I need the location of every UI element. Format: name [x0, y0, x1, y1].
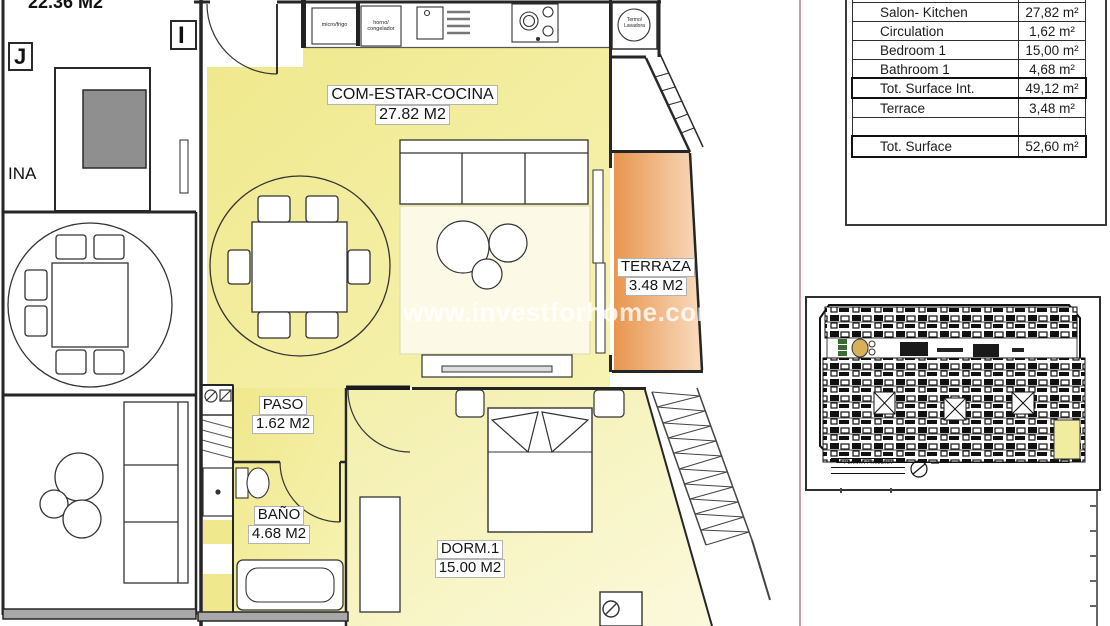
room-label-salon: COM-ESTAR-COCINA 27.82 M2 [330, 85, 495, 125]
appliance-label-micro: micro/frigo [313, 22, 356, 28]
neighbor-dining-table [8, 223, 172, 387]
room-label-paso: PASO 1.62 M2 [248, 396, 318, 434]
keyplan-caption: PLANTA PRIMERA [831, 458, 905, 468]
room-label-dorm: DORM.1 15.00 M2 [430, 540, 510, 578]
stair-elevator-core [9, 21, 196, 211]
partial-room-label: INA [8, 164, 36, 184]
bed [488, 408, 592, 532]
table-row: Salon- Kitchen 27,82 m² [852, 2, 1086, 21]
ruler-tick [1090, 580, 1097, 582]
table-row: Bedroom 1 15,00 m² [852, 40, 1086, 59]
keyplan-caption-rule [831, 470, 905, 474]
ruler-tick [1090, 505, 1097, 507]
appliance-label-horno: horno/ congelador [362, 20, 400, 33]
neighbor-sofa [40, 402, 188, 583]
utility-shaft [201, 385, 233, 516]
kitchen-sink [417, 7, 470, 39]
panel-separator-line [799, 0, 801, 626]
room-label-bano: BAÑO 4.68 M2 [243, 506, 315, 544]
table-row-empty [852, 117, 1086, 136]
ruler-tick [1090, 530, 1097, 532]
table-row: Terrace 3,48 m² [852, 98, 1086, 117]
surface-table: Salon- Kitchen 27,82 m² Circulation 1,62… [852, 0, 1086, 157]
keyplan-box: PLANTA PRIMERA [805, 296, 1101, 491]
appliance-label-termo: Termo/ Lavadora [616, 18, 653, 30]
keyplan-highlight-unit [1054, 420, 1080, 459]
frame-tick [890, 488, 892, 493]
facade-diagonal-top [646, 54, 703, 152]
table-row-partial [852, 0, 1086, 2]
table-row-total-interior: Tot. Surface Int. 49,12 m² [852, 78, 1086, 98]
wardrobe [360, 497, 400, 612]
sofa [400, 140, 588, 204]
table-row-total: Tot. Surface 52,60 m² [852, 136, 1086, 157]
table-row: Circulation 1,62 m² [852, 21, 1086, 40]
grid-letter-i: I [178, 22, 185, 50]
table-row: Bathroom 1 4,68 m² [852, 59, 1086, 78]
exterior-drain-box [600, 592, 642, 626]
tv-bench [422, 355, 572, 377]
watermark-text: www.investforhome.com [403, 297, 708, 328]
grid-letter-j: J [14, 44, 26, 70]
ruler-tick [1090, 605, 1097, 607]
neighbor-area-label: 22.36 M2 [28, 0, 103, 13]
floorplan-page: 22.36 M2 J I INA micro/frigo horno/ cong… [0, 0, 1110, 626]
ruler-tick [1090, 555, 1097, 557]
cooktop [512, 4, 558, 42]
room-label-terraza: TERRAZA 3.48 M2 [613, 258, 699, 296]
frame-tick [840, 488, 842, 493]
keyplan-stamp [911, 461, 939, 477]
